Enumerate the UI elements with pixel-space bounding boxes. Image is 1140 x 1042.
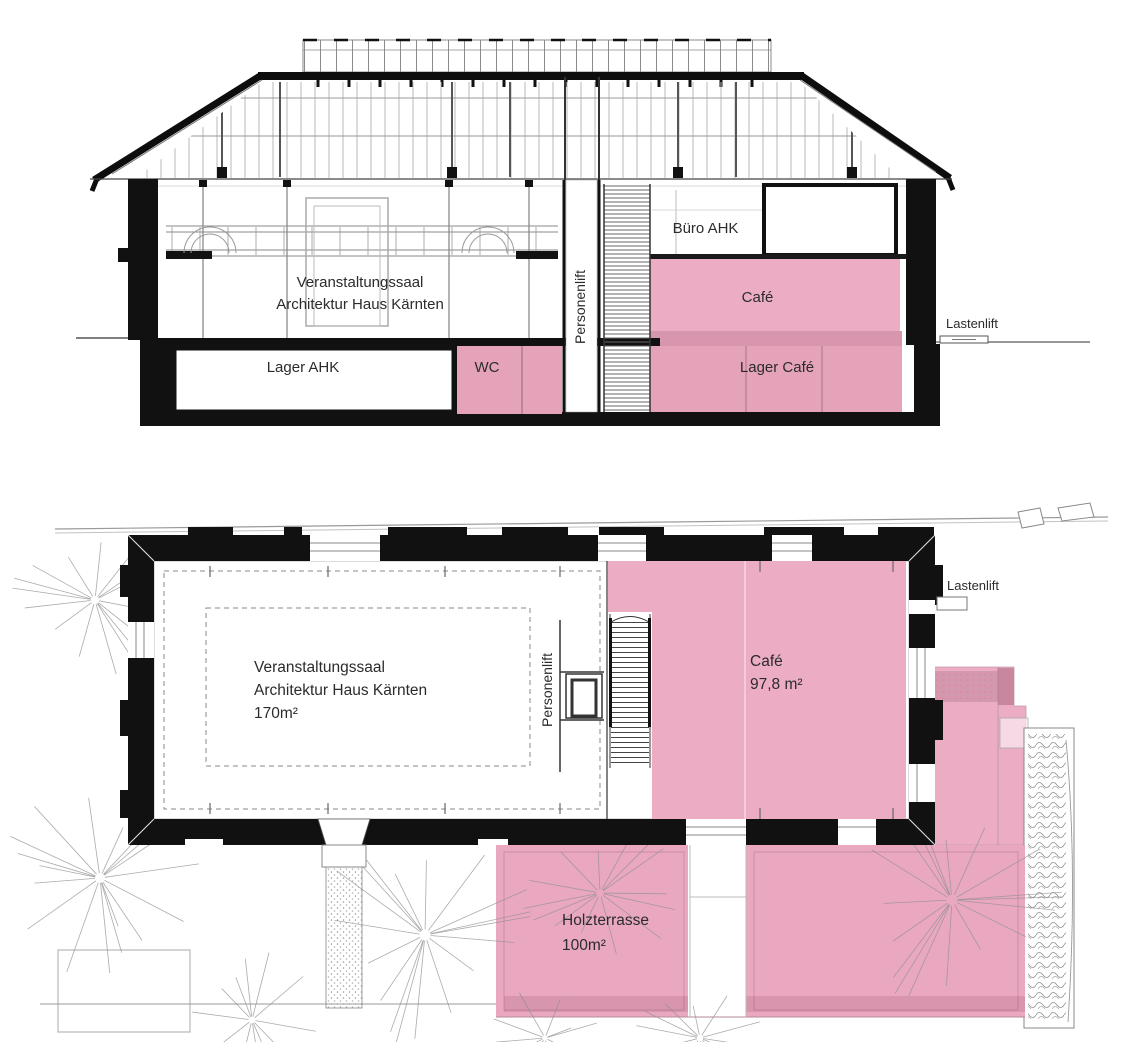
plan-cafe-area: 97,8 m² bbox=[750, 673, 890, 696]
section-hall-line1: Veranstaltungssaal bbox=[220, 272, 500, 294]
arched-window-icons bbox=[184, 227, 514, 253]
entrance-opening bbox=[318, 819, 370, 845]
section-lastenlift-label: Lastenlift bbox=[946, 317, 1036, 330]
hedge-strip bbox=[1024, 728, 1074, 1028]
right-wall-section bbox=[906, 179, 936, 345]
entrance-path bbox=[322, 845, 366, 1008]
lager-ahk-room bbox=[174, 348, 454, 412]
floor-plan-drawing bbox=[10, 503, 1108, 1042]
section-lager-cafe-label: Lager Café bbox=[707, 360, 847, 375]
plan-terrace-line1: Holzterrasse bbox=[562, 908, 722, 933]
cafe-floor-slab bbox=[650, 331, 902, 346]
plan-terrace-line2: 100m² bbox=[562, 933, 722, 958]
section-cafe-label: Café bbox=[705, 290, 810, 305]
roof-truss-hatch bbox=[136, 82, 900, 178]
plan-cafe-name: Café bbox=[750, 650, 890, 673]
plan-cafe-label: Café 97,8 m² bbox=[750, 650, 890, 696]
plan-hall-area: 170m² bbox=[254, 702, 494, 725]
section-wc-label: WC bbox=[455, 360, 519, 375]
section-buero-label: Büro AHK bbox=[648, 221, 763, 236]
stairs-section bbox=[604, 184, 650, 412]
plan-lastenlift-label: Lastenlift bbox=[947, 579, 1037, 592]
plan-terrace-label: Holzterrasse 100m² bbox=[562, 908, 722, 958]
drawing-linework bbox=[0, 0, 1140, 1042]
section-lager-ahk-label: Lager AHK bbox=[233, 360, 373, 375]
architectural-drawing: Veranstaltungssaal Architektur Haus Kärn… bbox=[0, 0, 1140, 1042]
lastenlift-plan-box bbox=[937, 597, 967, 610]
plan-hall-label: Veranstaltungssaal Architektur Haus Kärn… bbox=[254, 656, 494, 725]
stairs-plan bbox=[610, 614, 650, 768]
east-ramp-area bbox=[929, 667, 1028, 845]
wc-highlight bbox=[456, 346, 562, 414]
section-hall-label: Veranstaltungssaal Architektur Haus Kärn… bbox=[220, 272, 500, 316]
plan-hall-line2: Architektur Haus Kärnten bbox=[254, 679, 494, 702]
plan-hall-line1: Veranstaltungssaal bbox=[254, 656, 494, 679]
section-hall-line2: Architektur Haus Kärnten bbox=[220, 294, 500, 316]
left-wall-section bbox=[128, 179, 158, 340]
lager-cafe-highlight bbox=[650, 346, 902, 414]
section-personenlift-label: Personenlift bbox=[573, 237, 591, 377]
plan-personenlift-label: Personenlift bbox=[540, 620, 558, 760]
